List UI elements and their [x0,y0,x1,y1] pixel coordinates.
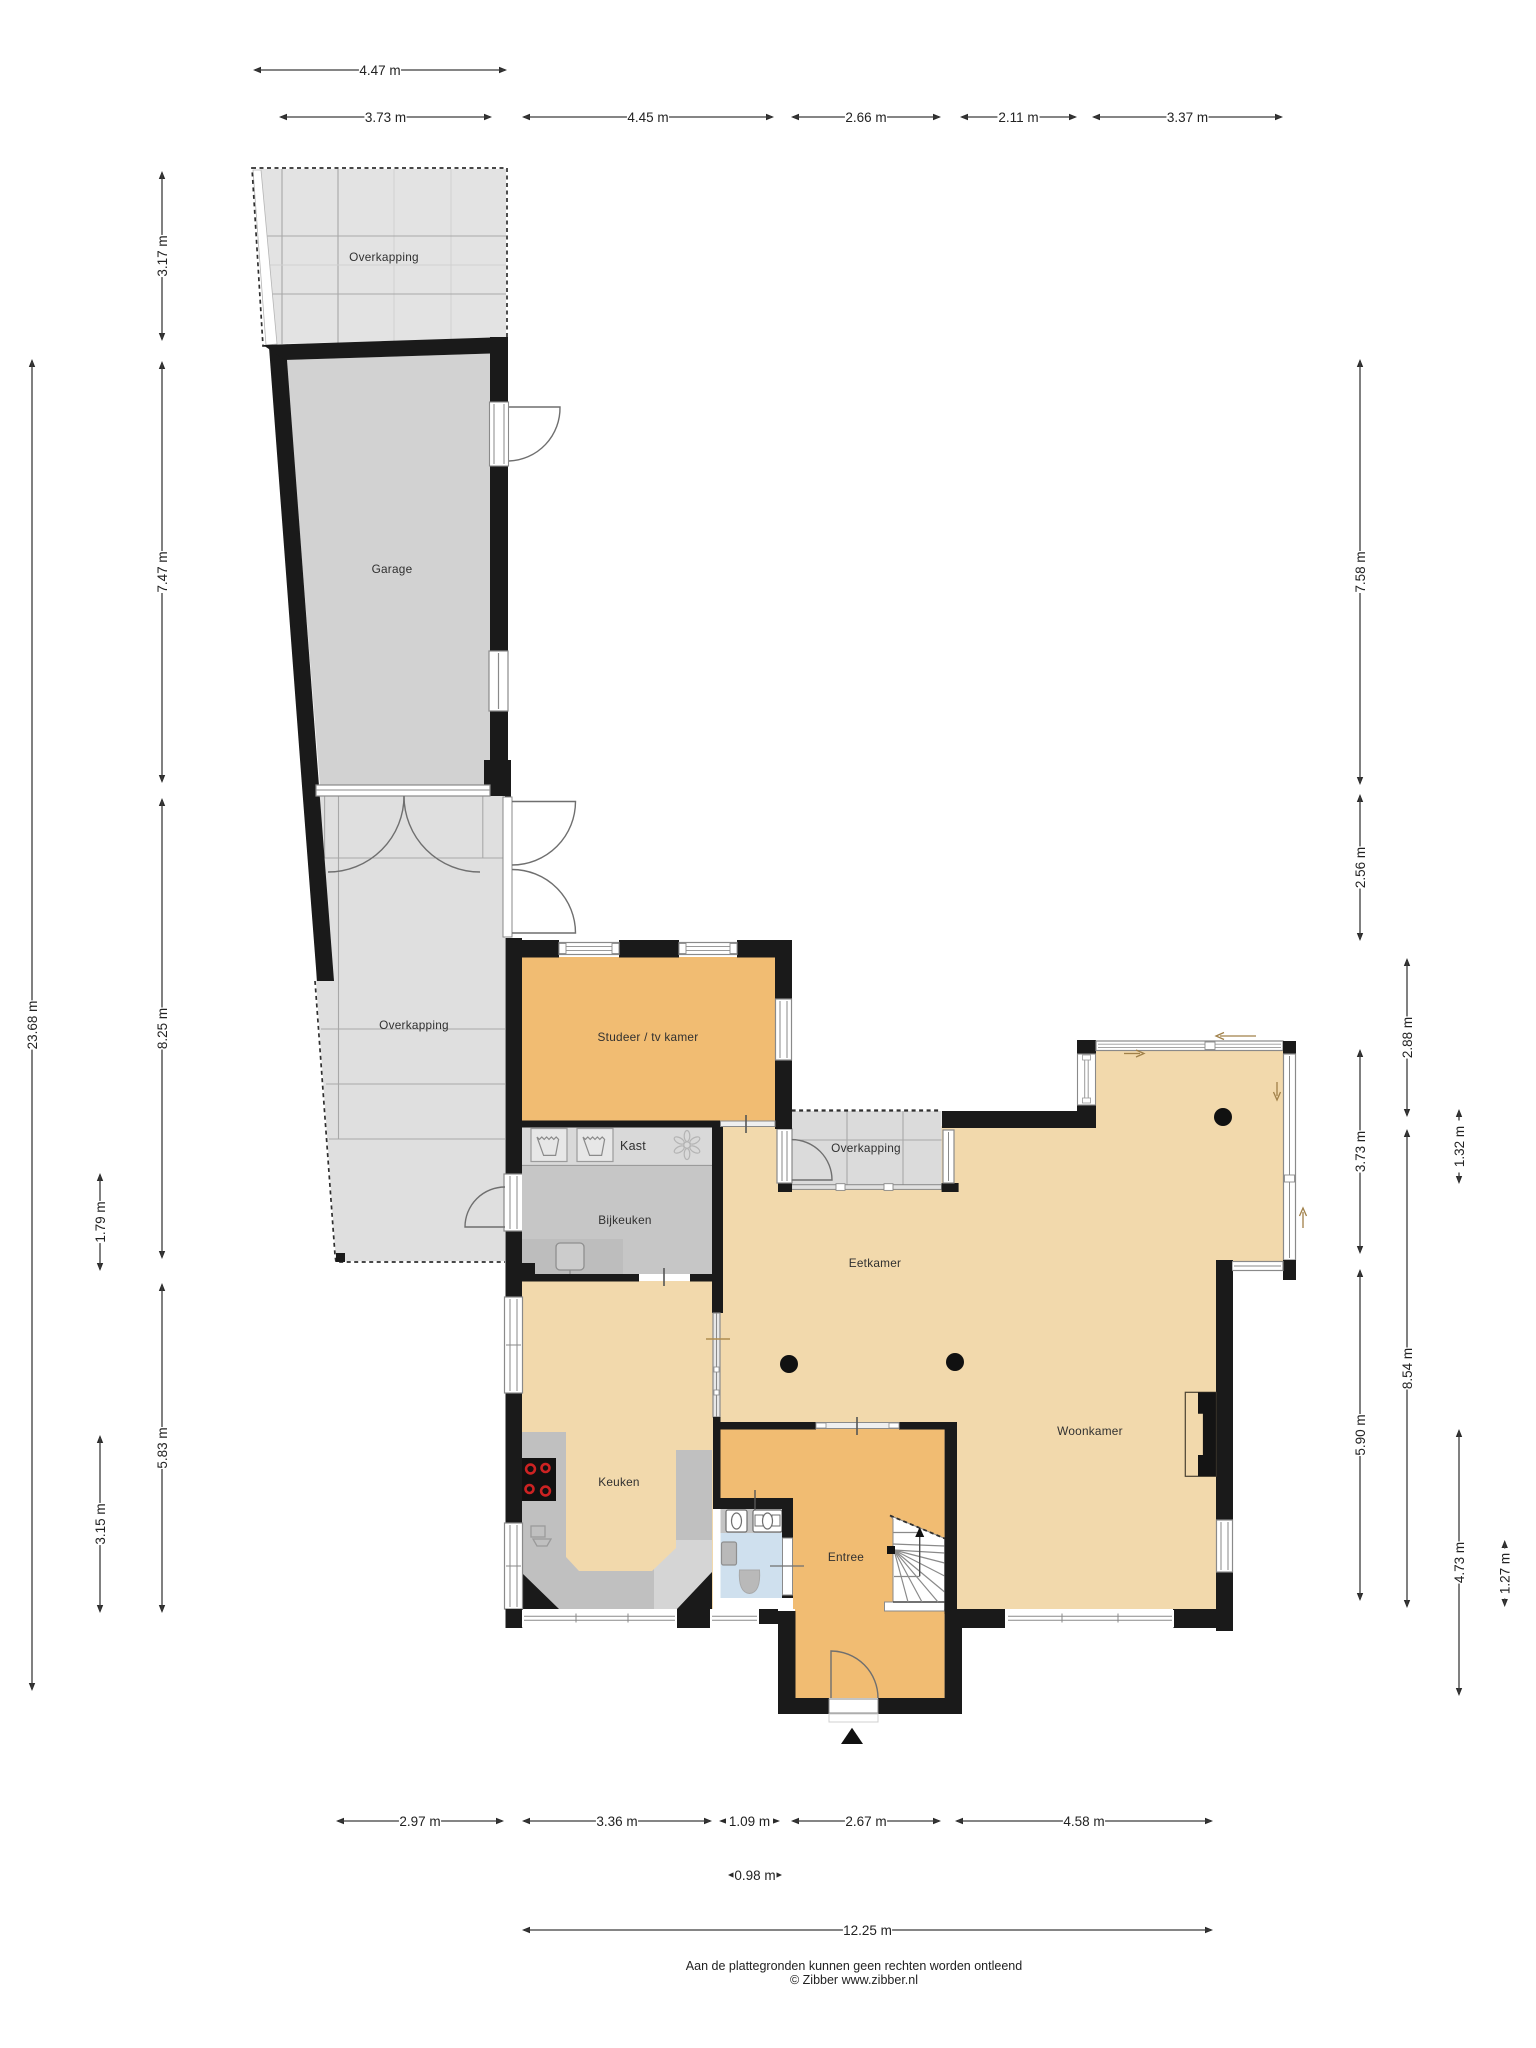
svg-text:Overkapping: Overkapping [379,1018,449,1032]
svg-text:Aan de plattegronden kunnen ge: Aan de plattegronden kunnen geen rechten… [686,1959,1022,1973]
svg-text:1.27 m: 1.27 m [1498,1553,1513,1594]
svg-text:3.36 m: 3.36 m [596,1814,637,1829]
svg-text:12.25 m: 12.25 m [843,1923,892,1938]
svg-text:Kast: Kast [620,1139,646,1153]
svg-text:Keuken: Keuken [598,1475,640,1489]
svg-text:3.17 m: 3.17 m [155,235,170,276]
svg-text:8.25 m: 8.25 m [155,1008,170,1049]
svg-text:Bijkeuken: Bijkeuken [598,1213,651,1227]
svg-text:3.73 m: 3.73 m [1353,1131,1368,1172]
svg-text:3.37 m: 3.37 m [1167,110,1208,125]
svg-text:Eetkamer: Eetkamer [849,1256,901,1270]
svg-text:5.90 m: 5.90 m [1353,1414,1368,1455]
svg-text:3.15 m: 3.15 m [93,1503,108,1544]
svg-text:Entree: Entree [828,1550,864,1564]
svg-text:1.79 m: 1.79 m [93,1201,108,1242]
svg-text:2.97 m: 2.97 m [399,1814,440,1829]
svg-text:0.98 m: 0.98 m [734,1868,775,1883]
svg-text:Garage: Garage [372,562,413,576]
svg-text:Studeer / tv kamer: Studeer / tv kamer [598,1030,699,1044]
svg-text:1.09 m: 1.09 m [729,1814,770,1829]
svg-text:23.68 m: 23.68 m [25,1001,40,1050]
svg-text:1.32 m: 1.32 m [1452,1126,1467,1167]
svg-text:8.54 m: 8.54 m [1400,1348,1415,1389]
svg-text:4.47 m: 4.47 m [359,63,400,78]
svg-text:4.45 m: 4.45 m [627,110,668,125]
svg-text:3.73 m: 3.73 m [365,110,406,125]
svg-text:7.47 m: 7.47 m [155,551,170,592]
svg-text:5.83 m: 5.83 m [155,1427,170,1468]
svg-text:4.73 m: 4.73 m [1452,1542,1467,1583]
svg-text:Overkapping: Overkapping [831,1141,901,1155]
svg-text:2.11 m: 2.11 m [998,110,1038,125]
svg-text:7.58 m: 7.58 m [1353,551,1368,592]
svg-text:Woonkamer: Woonkamer [1057,1424,1123,1438]
svg-text:2.56 m: 2.56 m [1353,847,1368,888]
svg-text:© Zibber www.zibber.nl: © Zibber www.zibber.nl [790,1973,918,1987]
svg-text:4.58 m: 4.58 m [1063,1814,1104,1829]
svg-text:2.88 m: 2.88 m [1400,1017,1415,1058]
svg-text:2.67 m: 2.67 m [845,1814,886,1829]
svg-text:2.66 m: 2.66 m [845,110,886,125]
svg-text:Overkapping: Overkapping [349,250,419,264]
